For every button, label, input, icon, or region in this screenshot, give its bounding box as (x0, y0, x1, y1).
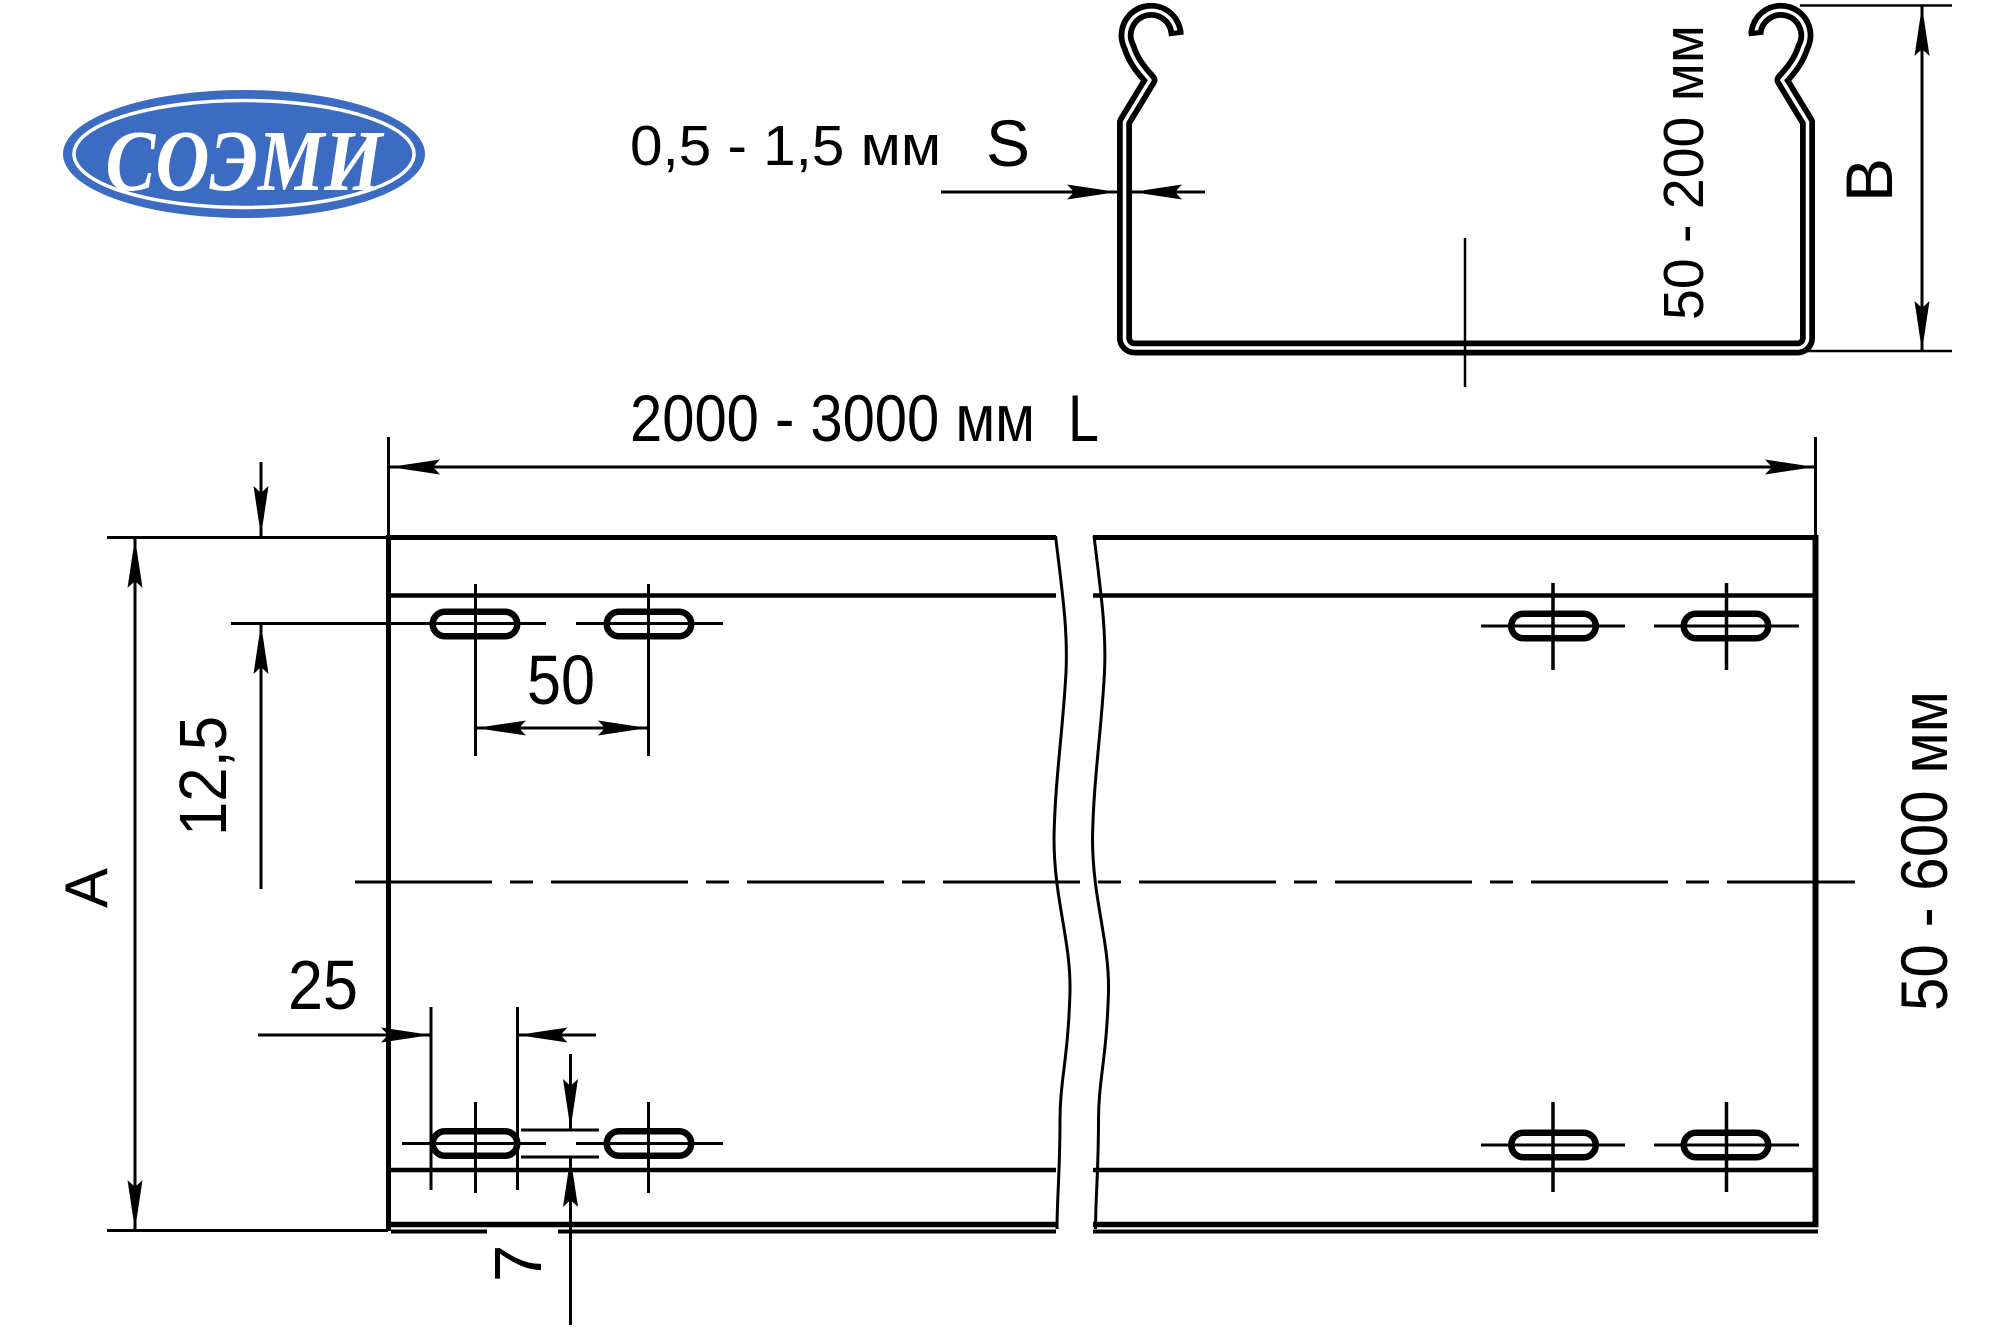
svg-text:50 - 600 мм: 50 - 600 мм (1887, 691, 1961, 1011)
svg-text:0,5 - 1,5 мм: 0,5 - 1,5 мм (630, 114, 941, 178)
svg-text:S: S (986, 106, 1030, 180)
svg-text:50: 50 (527, 641, 595, 719)
svg-text:СОЭМИ: СОЭМИ (106, 112, 385, 209)
svg-text:7: 7 (481, 1245, 556, 1282)
svg-text:12,5: 12,5 (166, 716, 241, 836)
svg-text:2000 - 3000 мм: 2000 - 3000 мм (630, 381, 1035, 455)
svg-text:B: B (1832, 158, 1906, 202)
svg-text:50 - 200 мм: 50 - 200 мм (1652, 25, 1716, 320)
svg-text:A: A (53, 868, 120, 908)
svg-text:L: L (1068, 381, 1099, 455)
svg-text:25: 25 (288, 946, 358, 1024)
